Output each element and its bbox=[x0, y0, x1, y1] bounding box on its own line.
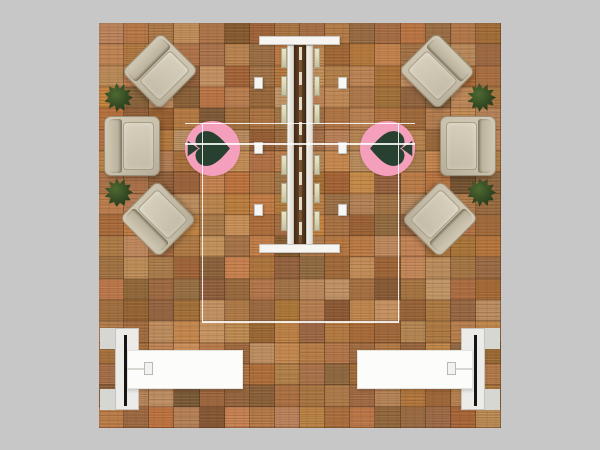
floor-tile bbox=[426, 257, 451, 278]
wall-stool bbox=[338, 77, 347, 89]
hanging-sign-edge bbox=[185, 143, 415, 145]
floor-tile bbox=[300, 343, 325, 364]
floor-tile bbox=[250, 385, 275, 406]
floor-tile bbox=[476, 44, 501, 65]
floor-tile bbox=[250, 151, 275, 172]
wall-shelf bbox=[314, 104, 320, 124]
floor-tile bbox=[275, 343, 300, 364]
floor-tile bbox=[99, 279, 124, 300]
heart-play-logo bbox=[185, 121, 240, 176]
hanging-sign-edge bbox=[202, 123, 204, 323]
floor-tile bbox=[275, 407, 300, 428]
floor-tile bbox=[401, 23, 426, 44]
floor-tile bbox=[350, 23, 375, 44]
floor-tile bbox=[124, 23, 149, 44]
floor-tile bbox=[200, 321, 225, 342]
hanging-sign-edge bbox=[185, 123, 415, 125]
floor-tile bbox=[325, 87, 350, 108]
monitor-screen bbox=[474, 335, 477, 406]
floor-tile bbox=[99, 257, 124, 278]
rug-left bbox=[185, 121, 240, 176]
floor-tile bbox=[325, 215, 350, 236]
floor-tile bbox=[124, 257, 149, 278]
floor-tile bbox=[476, 215, 501, 236]
floor-tile bbox=[99, 23, 124, 44]
floor-tile bbox=[350, 236, 375, 257]
floor-tile bbox=[275, 364, 300, 385]
floor-tile bbox=[325, 172, 350, 193]
floor-tile bbox=[250, 300, 275, 321]
floor-tile bbox=[300, 300, 325, 321]
monitor-arm bbox=[453, 368, 473, 370]
floor-tile bbox=[200, 257, 225, 278]
armchair-mid-left bbox=[104, 116, 160, 176]
floor-tile bbox=[350, 215, 375, 236]
floor-tile bbox=[225, 66, 250, 87]
floor-tile bbox=[174, 236, 199, 257]
floor-tile bbox=[275, 257, 300, 278]
chair-backrest bbox=[107, 119, 122, 173]
floor-tile bbox=[99, 236, 124, 257]
floor-tile bbox=[225, 407, 250, 428]
floor-tile bbox=[350, 407, 375, 428]
floor-tile bbox=[149, 257, 174, 278]
floor-tile bbox=[275, 385, 300, 406]
wall-shelf bbox=[281, 104, 287, 124]
hanging-sign-edge bbox=[202, 321, 400, 323]
chair-seat-cushion bbox=[123, 122, 154, 170]
floor-tile bbox=[149, 407, 174, 428]
monitor-screen bbox=[124, 335, 127, 406]
floor-tile bbox=[149, 321, 174, 342]
floor-tile bbox=[275, 300, 300, 321]
floor-tile bbox=[200, 66, 225, 87]
floor-tile bbox=[124, 279, 149, 300]
floor-tile bbox=[300, 257, 325, 278]
floor-tile bbox=[174, 321, 199, 342]
hanging-sign-edge bbox=[398, 123, 400, 323]
floor-tile bbox=[250, 321, 275, 342]
floor-tile bbox=[426, 407, 451, 428]
floor-tile bbox=[325, 257, 350, 278]
floor-tile bbox=[275, 321, 300, 342]
floor-tile bbox=[300, 385, 325, 406]
floor-tile bbox=[325, 108, 350, 129]
floor-tile bbox=[325, 300, 350, 321]
floor-tile bbox=[250, 407, 275, 428]
chair-backrest bbox=[478, 119, 493, 173]
floor-tile bbox=[174, 279, 199, 300]
monitor-mount bbox=[447, 362, 456, 375]
floor-tile bbox=[451, 300, 476, 321]
wall-shelf bbox=[281, 211, 287, 231]
floor-tile bbox=[350, 66, 375, 87]
floor-tile bbox=[325, 321, 350, 342]
floor-tile bbox=[225, 321, 250, 342]
floor-tile bbox=[476, 257, 501, 278]
monitor-mount bbox=[144, 362, 153, 375]
floor-tile bbox=[350, 321, 375, 342]
floor-tile bbox=[149, 300, 174, 321]
floor-tile bbox=[99, 44, 124, 65]
floor-tile bbox=[476, 236, 501, 257]
center-wall-top-cap bbox=[259, 36, 340, 45]
wall-shelf bbox=[281, 48, 287, 68]
floor-tile bbox=[451, 257, 476, 278]
floor-tile bbox=[250, 215, 275, 236]
floor-tile bbox=[225, 300, 250, 321]
floor-tile bbox=[401, 321, 426, 342]
floor-tile bbox=[275, 279, 300, 300]
floor-tile bbox=[476, 279, 501, 300]
wall-shelf bbox=[314, 155, 320, 175]
floor-tile bbox=[451, 279, 476, 300]
floor-tile bbox=[124, 300, 149, 321]
floor-tile bbox=[225, 279, 250, 300]
floor-tile bbox=[325, 385, 350, 406]
floor-tile bbox=[325, 343, 350, 364]
floor-tile bbox=[375, 407, 400, 428]
floor-tile bbox=[174, 23, 199, 44]
floor-tile bbox=[375, 321, 400, 342]
floor-tile bbox=[300, 279, 325, 300]
wall-stool bbox=[254, 204, 263, 216]
floor-tile bbox=[200, 194, 225, 215]
floor-tile bbox=[174, 407, 199, 428]
floor-tile bbox=[451, 23, 476, 44]
floor-tile bbox=[225, 257, 250, 278]
floor-tile bbox=[174, 300, 199, 321]
floor-tile bbox=[225, 215, 250, 236]
floor-tile bbox=[300, 407, 325, 428]
floor-tile bbox=[325, 364, 350, 385]
floor-tile bbox=[200, 407, 225, 428]
floor-tile bbox=[99, 66, 124, 87]
floor-tile bbox=[325, 44, 350, 65]
floor-tile bbox=[350, 300, 375, 321]
wall-shelf bbox=[281, 76, 287, 96]
floor-tile bbox=[225, 236, 250, 257]
floor-tile bbox=[200, 87, 225, 108]
heart-play-logo-mirrored bbox=[360, 121, 415, 176]
floor-tile bbox=[476, 23, 501, 44]
wall-shelf bbox=[314, 76, 320, 96]
floor-tile bbox=[225, 23, 250, 44]
floor-tile bbox=[300, 321, 325, 342]
wall-shelf bbox=[281, 183, 287, 203]
floor-tile bbox=[325, 279, 350, 300]
floor-tile bbox=[250, 343, 275, 364]
wall-stool bbox=[254, 77, 263, 89]
floor-tile bbox=[149, 279, 174, 300]
floor-tile bbox=[200, 279, 225, 300]
floor-tile bbox=[375, 87, 400, 108]
floor-tile bbox=[426, 300, 451, 321]
floor-tile bbox=[200, 236, 225, 257]
floor-tile bbox=[250, 279, 275, 300]
floor-tile bbox=[250, 44, 275, 65]
floor-tile bbox=[476, 300, 501, 321]
floor-tile bbox=[225, 87, 250, 108]
floor-tile bbox=[200, 23, 225, 44]
center-wall-left-panel bbox=[287, 45, 294, 245]
floor-tile bbox=[426, 279, 451, 300]
wall-shelf bbox=[281, 155, 287, 175]
wall-shelf bbox=[314, 211, 320, 231]
floor-tile bbox=[401, 279, 426, 300]
floor-tile bbox=[350, 87, 375, 108]
floor-tile bbox=[350, 194, 375, 215]
heart-icon bbox=[370, 131, 404, 166]
floor-tile bbox=[350, 279, 375, 300]
floor-tile bbox=[200, 300, 225, 321]
floor-tile bbox=[250, 108, 275, 129]
armchair-mid-right bbox=[440, 116, 496, 176]
floor-tile bbox=[174, 257, 199, 278]
floor-tile bbox=[375, 66, 400, 87]
center-wall-bottom-cap bbox=[259, 244, 340, 253]
floor-tile bbox=[401, 300, 426, 321]
rug-right bbox=[360, 121, 415, 176]
floor-tile bbox=[401, 257, 426, 278]
floor-tile bbox=[350, 257, 375, 278]
center-wall-right-panel bbox=[306, 45, 313, 245]
floor-tile bbox=[325, 151, 350, 172]
floor-tile bbox=[350, 44, 375, 65]
floor-tile bbox=[225, 194, 250, 215]
floor-tile bbox=[375, 23, 400, 44]
chair-seat-cushion bbox=[446, 122, 477, 170]
floor-tile bbox=[250, 257, 275, 278]
floor-tile bbox=[250, 364, 275, 385]
floor-tile bbox=[401, 407, 426, 428]
center-wall-spine bbox=[299, 47, 302, 243]
floor-tile bbox=[225, 44, 250, 65]
wall-shelf bbox=[314, 183, 320, 203]
floor-tile bbox=[99, 300, 124, 321]
floor-tile bbox=[250, 172, 275, 193]
booth-render bbox=[0, 0, 600, 450]
wall-stool bbox=[338, 204, 347, 216]
floor-tile bbox=[375, 44, 400, 65]
floor-tile bbox=[200, 44, 225, 65]
floor-tile bbox=[300, 364, 325, 385]
floor-tile bbox=[325, 407, 350, 428]
floor-tile bbox=[250, 87, 275, 108]
floor-tile bbox=[426, 321, 451, 342]
floor-tile bbox=[200, 215, 225, 236]
wall-shelf bbox=[314, 48, 320, 68]
